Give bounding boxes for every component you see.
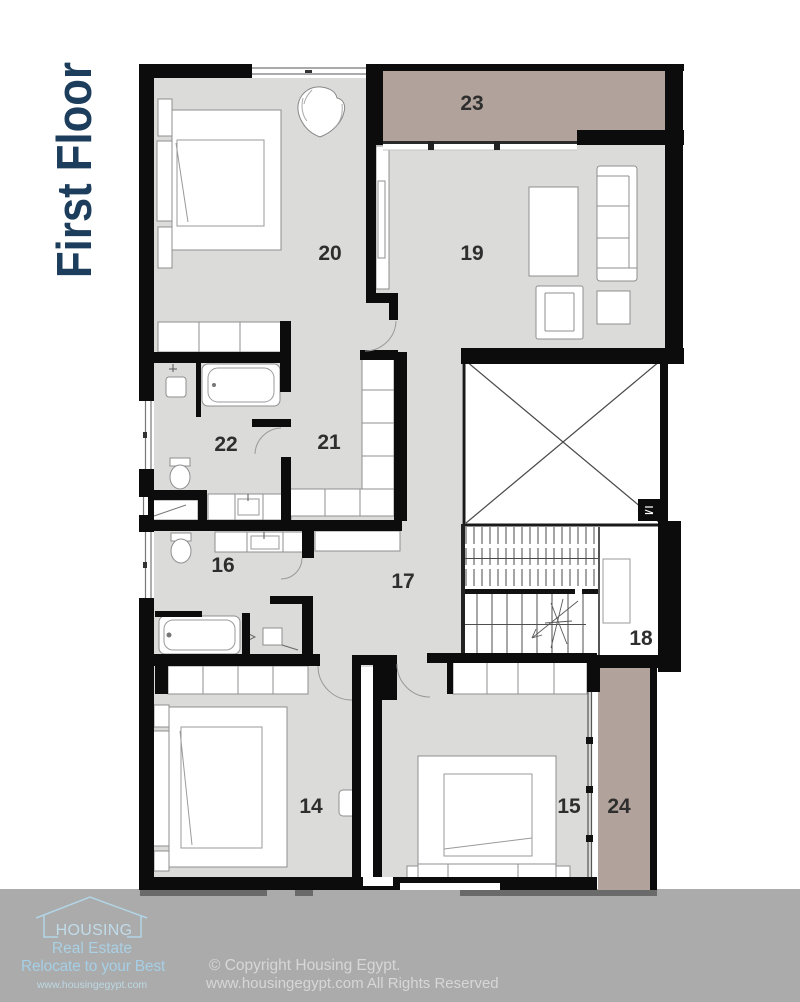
svg-text:17: 17 [391,570,414,593]
svg-text:22: 22 [214,433,237,456]
svg-text:14: 14 [299,795,323,818]
svg-text:18: 18 [629,627,653,650]
svg-text:24: 24 [607,795,631,818]
svg-text:20: 20 [318,242,341,265]
svg-text:www.housingegypt.com All Right: www.housingegypt.com All Rights Reserved [205,975,499,992]
svg-text:Real Estate: Real Estate [52,940,132,957]
svg-text:16: 16 [211,554,234,577]
svg-text:© Copyright Housing Egypt.: © Copyright Housing Egypt. [209,957,401,974]
svg-text:19: 19 [460,242,483,265]
svg-text:www.housingegypt.com: www.housingegypt.com [36,979,148,991]
svg-text:First Floor: First Floor [48,62,102,278]
svg-text:23: 23 [460,92,483,115]
svg-text:HOUSING: HOUSING [56,922,133,939]
svg-text:15: 15 [557,795,581,818]
svg-text:21: 21 [317,431,341,454]
svg-text:Relocate to your Best: Relocate to your Best [21,958,166,975]
